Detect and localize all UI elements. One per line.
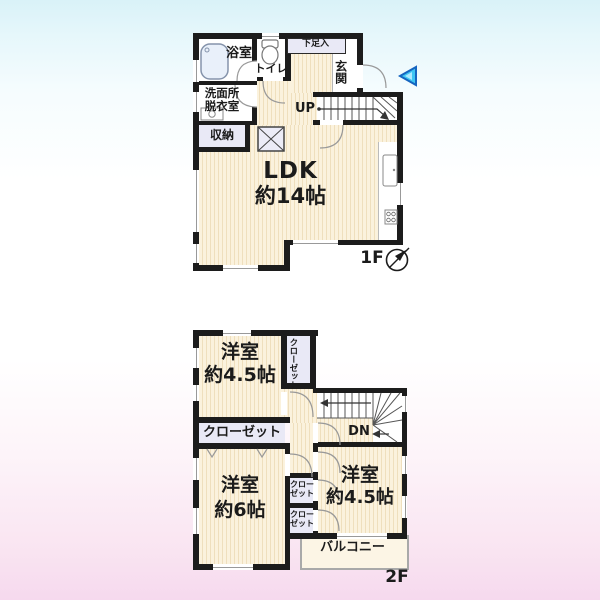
bathtub-icon xyxy=(201,44,228,79)
closet-vertical-col1: クロー xyxy=(288,338,298,364)
room-nw-label-line1: 洋室 xyxy=(199,343,281,363)
entrance-label: 玄関 xyxy=(334,55,347,89)
toilet-label: トイレ xyxy=(254,63,288,75)
room-sw-label-line1: 洋室 xyxy=(199,476,281,496)
shoe-box-label: 下足入 xyxy=(287,40,344,49)
toilet-icon xyxy=(262,40,278,64)
washroom-label-line2: 脱衣室 xyxy=(199,100,245,112)
floor-2f-tag: 2F xyxy=(384,569,410,587)
closet-vertical-col2: ゼット xyxy=(288,364,298,390)
floor-1f-plan: 浴室 トイレ 洗面所 脱衣室 収納 下足入 玄関 UP LDK 約14帖 xyxy=(193,33,403,271)
balcony-label: バルコニー xyxy=(300,541,405,555)
room-se-label-line1: 洋室 xyxy=(318,466,402,486)
floorplan-canvas: 浴室 トイレ 洗面所 脱衣室 収納 下足入 玄関 UP LDK 約14帖 1F xyxy=(0,0,600,600)
up-label: UP xyxy=(293,102,317,116)
closet-vertical-label: クローゼット xyxy=(288,338,297,382)
folding-door-marks xyxy=(207,449,267,457)
floor-2f-plan: 洋室 約4.5帖 クローゼット クローゼット 洋室 約6帖 洋室 約4.5帖 ク… xyxy=(193,330,407,570)
dn-label: DN xyxy=(345,425,373,439)
washroom-label-line1: 洗面所 xyxy=(199,87,245,99)
room-sw-label-line2: 約6帖 xyxy=(199,501,281,521)
closet-x-box xyxy=(258,127,284,151)
closet-wide-label: クローゼット xyxy=(199,426,285,440)
kitchen-sink-icon xyxy=(383,155,397,186)
entrance-arrow-icon xyxy=(397,64,419,88)
floor-1f-symbols xyxy=(193,33,403,271)
floor-1f-tag: 1F xyxy=(359,250,385,268)
ldk-label-line2: 約14帖 xyxy=(233,185,348,207)
compass-icon xyxy=(384,245,412,273)
ldk-label-line1: LDK xyxy=(233,159,348,183)
room-nw-label-line2: 約4.5帖 xyxy=(199,366,281,386)
room-se-label-line2: 約4.5帖 xyxy=(318,489,402,508)
closet-small-1-label-line2: ゼット xyxy=(290,490,313,498)
bath-label: 浴室 xyxy=(225,47,253,61)
stairs-up-arrow xyxy=(317,107,389,120)
kitchen-stove-icon xyxy=(385,210,397,224)
closet-small-2-label-line2: ゼット xyxy=(290,520,313,528)
storage-label: 収納 xyxy=(199,129,245,142)
